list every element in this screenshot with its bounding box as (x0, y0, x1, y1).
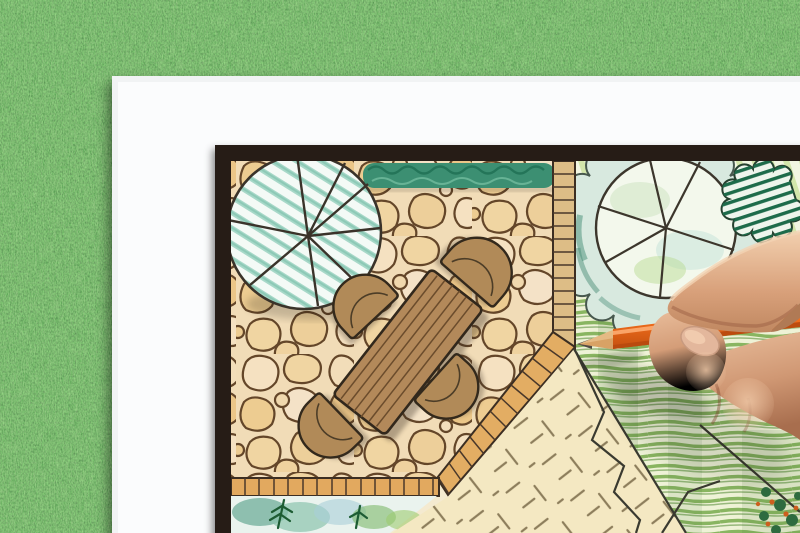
top-hedge (363, 163, 557, 192)
scene-canvas (0, 0, 800, 533)
vertical-brick-path (553, 161, 575, 349)
photo-scene (0, 0, 800, 533)
bottom-brick-edging (231, 478, 439, 496)
